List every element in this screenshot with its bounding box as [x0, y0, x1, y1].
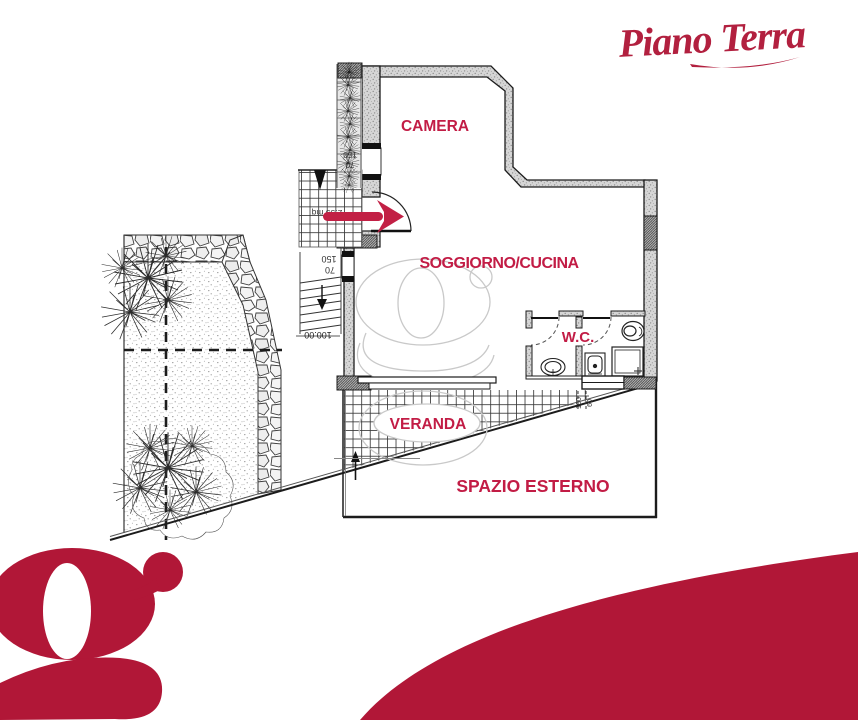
- svg-text:150: 150: [343, 150, 357, 159]
- svg-text:CAMERA: CAMERA: [401, 118, 469, 135]
- svg-text:VERANDA: VERANDA: [390, 416, 467, 433]
- svg-text:100.00: 100.00: [304, 330, 332, 340]
- svg-text:SPAZIO ESTERNO: SPAZIO ESTERNO: [456, 476, 609, 496]
- svg-text:70: 70: [345, 160, 354, 169]
- svg-text:60: 60: [587, 399, 594, 407]
- svg-text:70: 70: [325, 265, 335, 275]
- svg-text:100: 100: [576, 397, 583, 409]
- svg-text:SOGGIORNO/CUCINA: SOGGIORNO/CUCINA: [419, 255, 579, 272]
- svg-text:W.C.: W.C.: [562, 329, 595, 346]
- svg-text:150: 150: [321, 254, 336, 264]
